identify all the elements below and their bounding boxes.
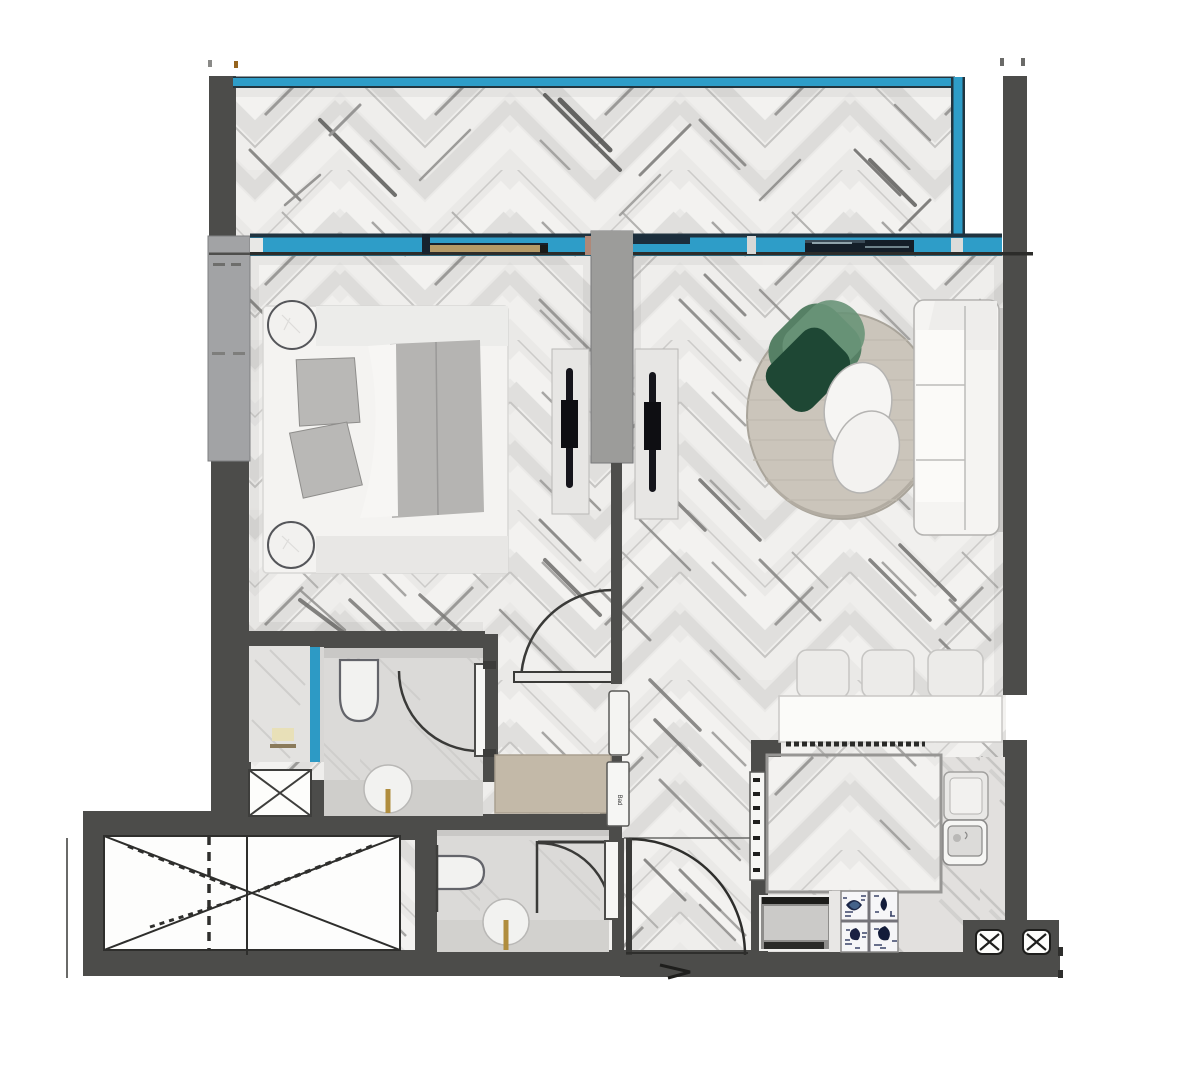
svg-text:Bad: Bad [616,795,622,806]
